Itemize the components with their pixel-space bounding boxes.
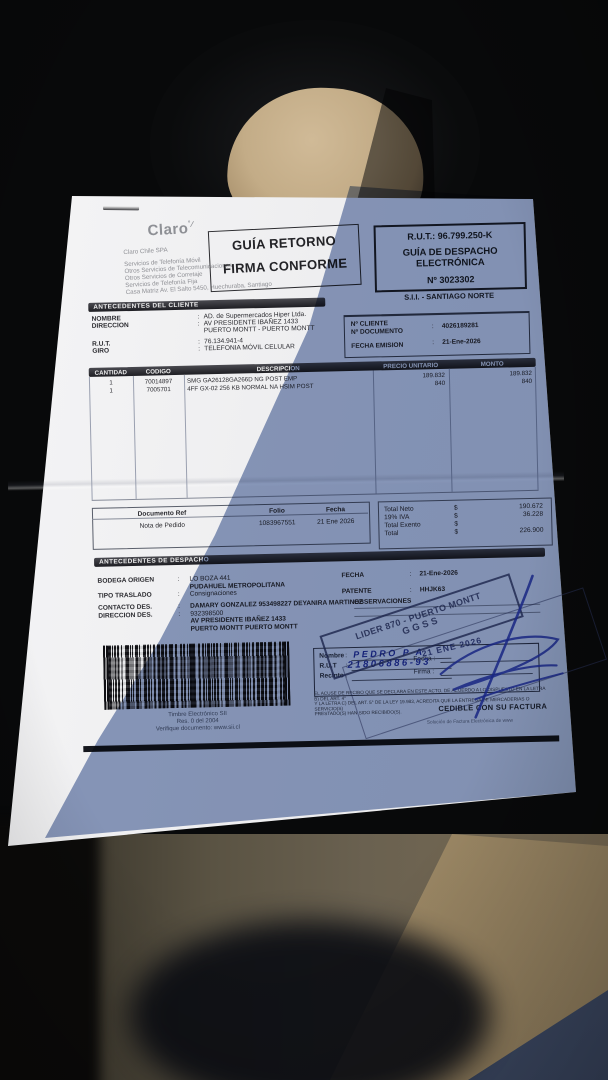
client-giro-label: GIRO — [92, 347, 109, 354]
item-qty: 1 — [89, 386, 133, 394]
item-code: 7005701 — [133, 385, 184, 393]
colon: : — [177, 576, 179, 583]
client-section-header: ANTECEDENTES DEL CLIENTE — [88, 298, 325, 312]
items-header-cantidad: CANTIDAD — [89, 368, 133, 376]
left-dark-area — [0, 820, 100, 1080]
table-grid-line — [133, 376, 137, 499]
client-giro-value: TELEFONIA MÓVIL CELULAR — [204, 343, 295, 352]
direccion-label: DIRECCION DES. — [98, 611, 152, 619]
table-grid-line — [184, 375, 188, 498]
claro-logo: Claro˚∕ — [147, 220, 194, 240]
traslado-label: TIPO TRASLADO — [98, 592, 152, 600]
items-header-codigo: CODIGO — [133, 367, 184, 375]
barcode-guard-left — [103, 646, 109, 710]
photo-scene: Claro˚∕ Claro Chile SPA Servicios de Tel… — [0, 0, 608, 1080]
colon: : — [197, 313, 199, 320]
colon: : — [198, 320, 200, 327]
colon: : — [198, 338, 200, 345]
colon: : — [178, 591, 180, 598]
bodega-label: BODEGA ORIGEN — [97, 577, 154, 585]
colon: : — [198, 345, 200, 352]
staple-icon — [103, 206, 139, 210]
client-direccion-label: DIRECCION — [92, 322, 129, 330]
client-direccion-value-2: PUERTO MONTT - PUERTO MONTT — [204, 325, 315, 335]
